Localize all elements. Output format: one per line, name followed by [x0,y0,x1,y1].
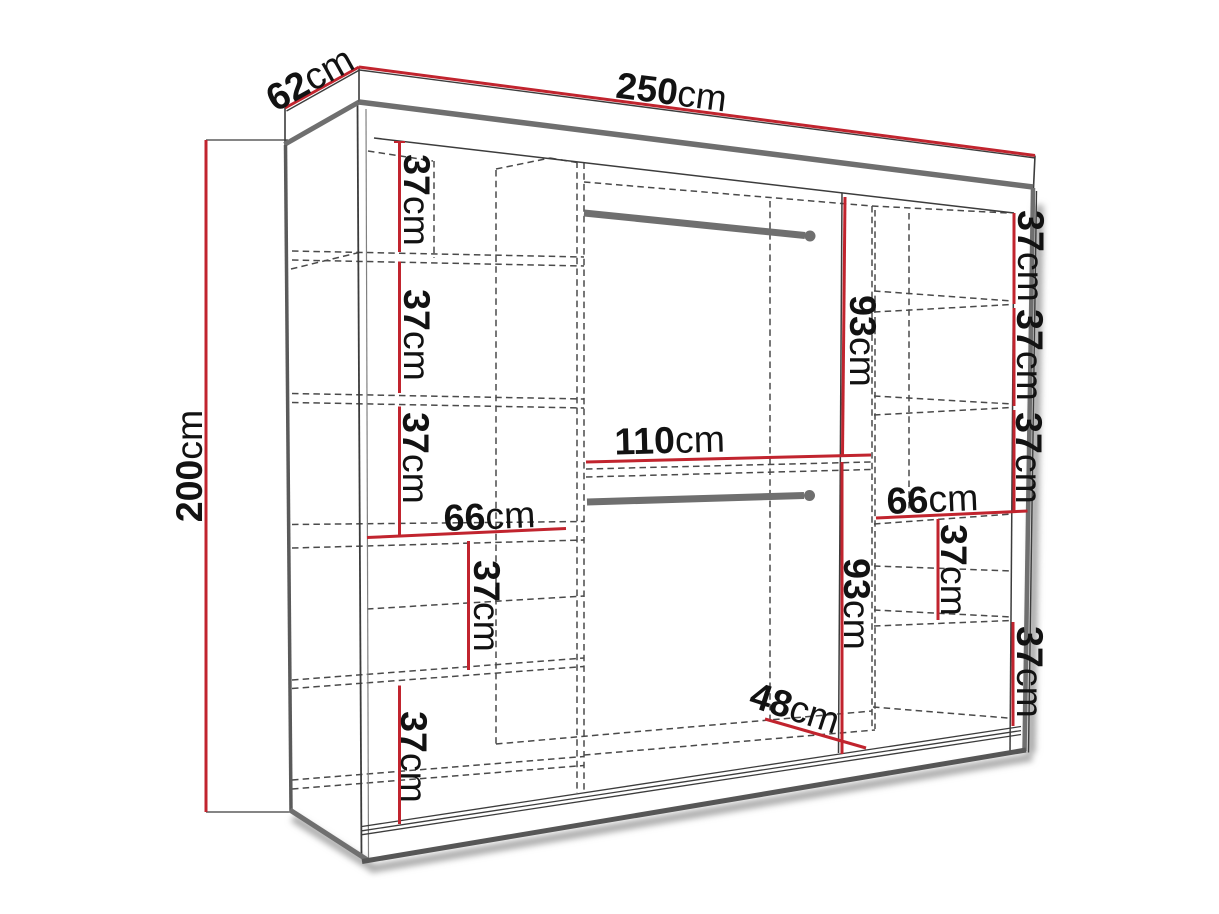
svg-text:200cm: 200cm [168,410,210,523]
svg-text:37cm: 37cm [396,154,438,246]
svg-text:37cm: 37cm [396,289,438,381]
svg-text:37cm: 37cm [1010,210,1052,302]
svg-text:37cm: 37cm [933,524,975,616]
svg-text:66cm: 66cm [886,476,979,522]
svg-text:93cm: 93cm [842,295,884,387]
svg-text:37cm: 37cm [1008,412,1050,504]
svg-text:37cm: 37cm [393,711,435,803]
svg-text:37cm: 37cm [1009,309,1051,401]
svg-text:110cm: 110cm [614,418,726,463]
svg-text:37cm: 37cm [466,560,508,652]
svg-text:37cm: 37cm [395,412,437,504]
svg-text:93cm: 93cm [836,558,878,650]
svg-text:37cm: 37cm [1009,626,1051,718]
svg-text:66cm: 66cm [443,493,536,539]
